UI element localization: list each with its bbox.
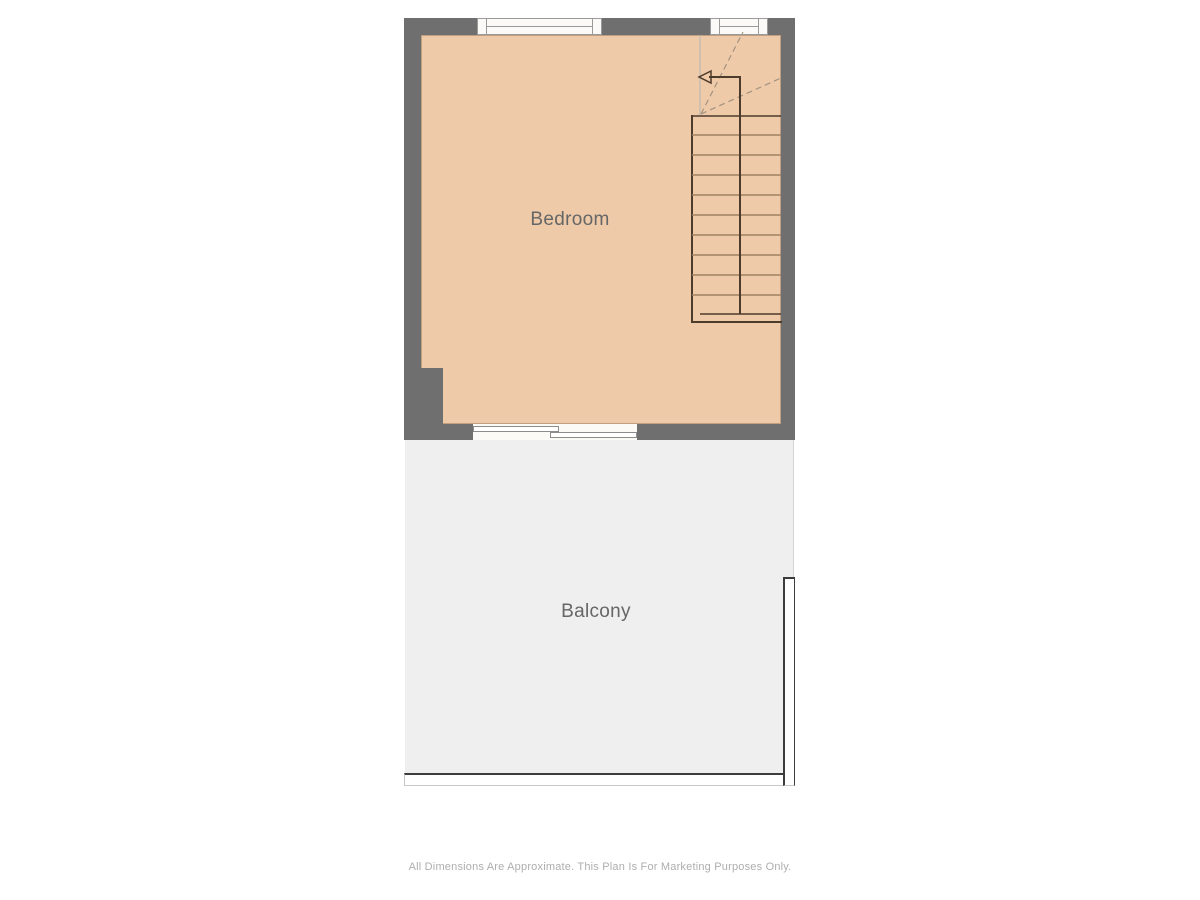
bedroom-label: Bedroom — [530, 209, 609, 231]
stair-enclosure — [692, 115, 782, 322]
balcony-label: Balcony — [561, 601, 631, 623]
balcony-railing-bottom — [404, 773, 795, 786]
stair-treads — [692, 135, 781, 295]
floor-plan: Bedroom Balcony — [404, 18, 795, 787]
disclaimer-text: All Dimensions Are Approximate. This Pla… — [0, 861, 1200, 873]
balcony-railing-right — [783, 577, 795, 786]
staircase — [404, 18, 795, 787]
